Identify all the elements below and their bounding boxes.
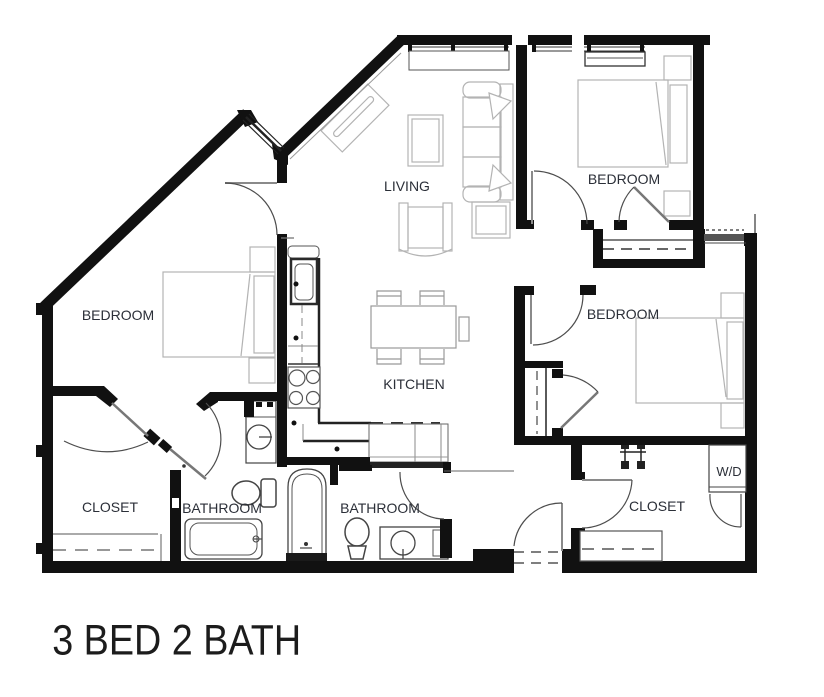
svg-text:W/D: W/D: [716, 464, 741, 479]
svg-text:BEDROOM: BEDROOM: [82, 307, 154, 323]
svg-text:BATHROOM: BATHROOM: [340, 500, 420, 516]
svg-text:LIVING: LIVING: [384, 178, 430, 194]
svg-text:KITCHEN: KITCHEN: [383, 376, 444, 392]
svg-text:BEDROOM: BEDROOM: [587, 306, 659, 322]
svg-text:CLOSET: CLOSET: [629, 498, 685, 514]
svg-text:CLOSET: CLOSET: [82, 499, 138, 515]
svg-text:BATHROOM: BATHROOM: [182, 500, 262, 516]
svg-text:3 BED 2 BATH: 3 BED 2 BATH: [52, 616, 301, 664]
svg-text:BEDROOM: BEDROOM: [588, 171, 660, 187]
